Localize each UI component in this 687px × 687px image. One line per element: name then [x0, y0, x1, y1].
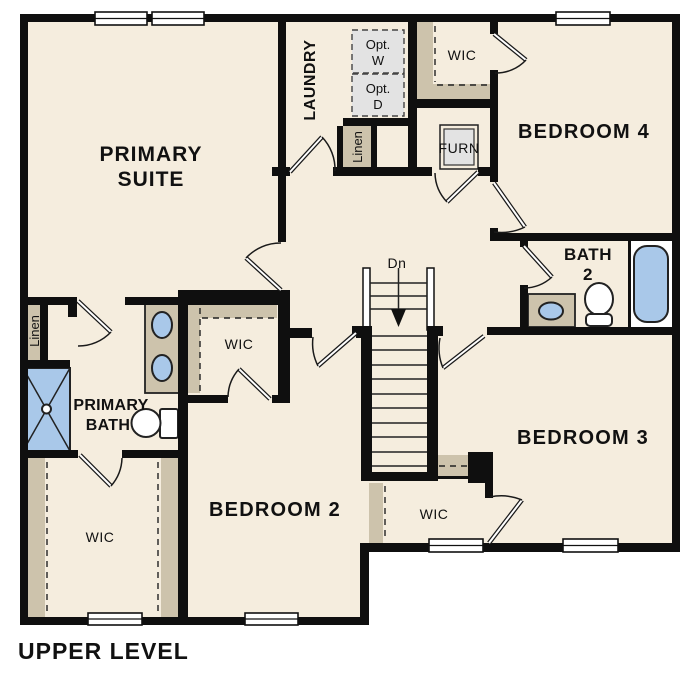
wall-exterior-step [360, 543, 369, 625]
label-opt-dryer-line2: D [373, 97, 382, 112]
label-bedroom3: BEDROOM 3 [517, 427, 649, 449]
primary-wic-shelf-left [28, 458, 45, 617]
wall-linen-left [337, 126, 343, 176]
wall-door-jamb [68, 297, 77, 317]
wall-bedroom4-west [490, 70, 498, 182]
wall-primary-suite-south [125, 297, 278, 305]
primary-vanity-sink-2 [152, 355, 172, 381]
wall-seg [20, 360, 70, 368]
label-primary-suite-line2: SUITE [118, 168, 185, 191]
primary-vanity-sink-1 [152, 312, 172, 338]
bedroom4-wic-shelf-left [417, 22, 433, 84]
wall-bedroom4-south [490, 233, 680, 241]
floor-base [20, 14, 680, 625]
floor-plan-canvas: PRIMARY SUITE LAUNDRY Opt. W Opt. D Line… [0, 0, 687, 687]
label-bath2-line1: BATH [564, 245, 612, 264]
bedroom4-wic-shelf-bottom [417, 84, 490, 99]
wall-bedroom2-west [178, 295, 188, 625]
wall-seg [485, 483, 493, 498]
wall-seg [278, 290, 290, 403]
label-stairs-down: Dn [388, 255, 407, 271]
bath2-toilet-base [586, 314, 612, 326]
bedroom2-wic-shelf-left [188, 305, 200, 393]
wall-primary-suite-east [278, 22, 286, 242]
label-wic-primary: WIC [86, 529, 115, 545]
label-bedroom4: BEDROOM 4 [518, 121, 650, 143]
wall-stair-west [361, 326, 372, 481]
label-opt-washer-line1: Opt. [366, 37, 391, 52]
wall-seg [20, 450, 78, 458]
label-primary-bath-line1: PRIMARY [73, 397, 148, 414]
label-primary-bath-line2: BATH [86, 417, 130, 434]
wall-seg [272, 167, 290, 176]
label-primary-suite-line1: PRIMARY [99, 143, 202, 166]
label-linen-primary: Linen [27, 315, 42, 347]
page-title: UPPER LEVEL [18, 638, 189, 664]
label-bedroom2: BEDROOM 2 [209, 499, 341, 521]
wall-laundry-south [343, 118, 412, 126]
label-linen-laundry: Linen [350, 131, 365, 163]
wall-exterior-right [672, 14, 680, 552]
stair-rail-right [427, 268, 434, 330]
wall-chase-block [468, 452, 493, 483]
wall-shelf-edge [437, 476, 469, 479]
label-wic-bedroom3: WIC [420, 506, 449, 522]
floor-plan-page: PRIMARY SUITE LAUNDRY Opt. W Opt. D Line… [0, 0, 687, 687]
wall-exterior-bottom-right [360, 543, 680, 552]
wall-seg [272, 395, 288, 403]
wall-wic2-north [178, 290, 290, 298]
label-wic-bedroom4: WIC [448, 47, 477, 63]
bath2-toilet-bowl [585, 283, 613, 315]
label-furnace: FURN [439, 140, 480, 156]
bath2-tub [634, 246, 668, 322]
label-opt-washer-line2: W [372, 53, 385, 68]
wall-seg [490, 22, 498, 34]
stair-rail-left [363, 268, 370, 330]
bedroom3-wic-shelf-left [369, 483, 383, 543]
label-wic-bedroom2: WIC [225, 336, 254, 352]
wall-linen-right [371, 126, 377, 176]
label-laundry: LAUNDRY [302, 39, 319, 120]
bath2-tub-wall [628, 241, 631, 327]
bath2-sink [539, 303, 563, 320]
wall-exterior-bottom-left [20, 617, 368, 625]
bedroom2-wic-shelf-top [188, 305, 277, 318]
wall-stair-east [427, 326, 438, 481]
label-bath2-line2: 2 [583, 265, 593, 284]
wall-bath2-south [487, 327, 680, 335]
primary-wic-shelf-right [161, 458, 178, 617]
wall-wic4-south [408, 99, 498, 108]
shower-drain [42, 405, 51, 414]
wall-hall-north [333, 167, 432, 176]
wall-seg [288, 328, 312, 338]
wall-seg [188, 395, 228, 403]
wall-stair-bottom [361, 472, 438, 481]
primary-toilet-tank [160, 409, 178, 438]
label-opt-dryer-line1: Opt. [366, 81, 391, 96]
